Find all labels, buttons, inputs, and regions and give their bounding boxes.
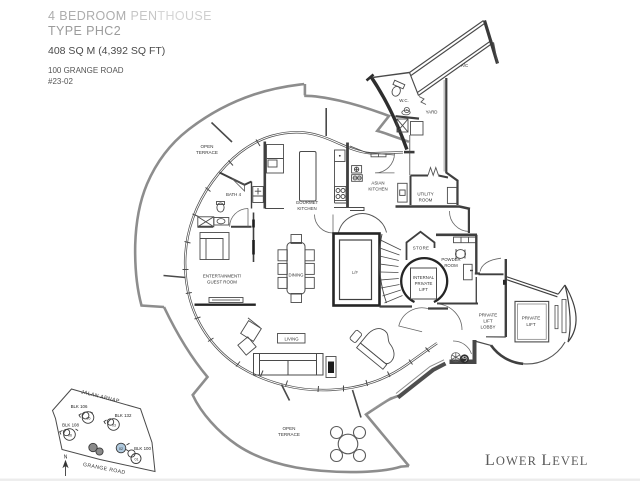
- svg-text:GOURMET: GOURMET: [296, 200, 319, 205]
- svg-text:LIFT: LIFT: [526, 322, 536, 327]
- svg-text:GUEST ROOM: GUEST ROOM: [207, 280, 237, 285]
- svg-text:LOBBY: LOBBY: [480, 325, 495, 330]
- svg-text:05: 05: [87, 417, 91, 421]
- svg-text:W.C.: W.C.: [399, 98, 409, 103]
- svg-text:TERRACE: TERRACE: [278, 432, 300, 437]
- svg-text:BLK 132: BLK 132: [115, 413, 132, 418]
- svg-text:DINING: DINING: [288, 273, 304, 278]
- svg-text:N: N: [64, 455, 68, 461]
- svg-text:02: 02: [119, 447, 123, 451]
- svg-text:06: 06: [68, 434, 72, 438]
- svg-text:03: 03: [112, 424, 116, 428]
- svg-text:ENTERTAINMENT/: ENTERTAINMENT/: [203, 274, 242, 279]
- svg-text:OPEN: OPEN: [200, 144, 213, 149]
- svg-text:LIFT: LIFT: [483, 319, 493, 324]
- svg-text:KITCHEN: KITCHEN: [368, 187, 387, 192]
- svg-text:LIVING: LIVING: [284, 337, 299, 342]
- svg-text:L/F: L/F: [352, 270, 358, 275]
- svg-text:PRIVATE: PRIVATE: [415, 281, 433, 286]
- svg-text:TERRACE: TERRACE: [196, 150, 218, 155]
- svg-text:KITCHEN: KITCHEN: [297, 206, 316, 211]
- svg-text:PRIVATE: PRIVATE: [522, 316, 541, 321]
- svg-text:UTILITY: UTILITY: [417, 192, 433, 197]
- svg-text:PRIVATE: PRIVATE: [479, 313, 498, 318]
- svg-text:ASIAN: ASIAN: [371, 181, 384, 186]
- svg-text:LIFT: LIFT: [419, 287, 428, 292]
- svg-text:BLK 100: BLK 100: [134, 446, 151, 451]
- svg-text:ROOM: ROOM: [444, 263, 458, 268]
- svg-text:BATH 4: BATH 4: [226, 192, 242, 197]
- svg-text:POWDER: POWDER: [441, 257, 460, 262]
- svg-text:ROOM: ROOM: [419, 198, 433, 203]
- svg-text:YARD: YARD: [426, 110, 438, 115]
- svg-text:A/C: A/C: [461, 63, 468, 68]
- svg-text:INTERNAL: INTERNAL: [413, 275, 435, 280]
- svg-text:JALAN ARNAP: JALAN ARNAP: [80, 389, 120, 404]
- svg-text:01: 01: [135, 458, 139, 462]
- svg-text:OPEN: OPEN: [282, 426, 295, 431]
- svg-text:STORE: STORE: [413, 246, 430, 251]
- svg-text:BLK 108: BLK 108: [62, 423, 79, 428]
- svg-text:BLK 106: BLK 106: [71, 404, 88, 409]
